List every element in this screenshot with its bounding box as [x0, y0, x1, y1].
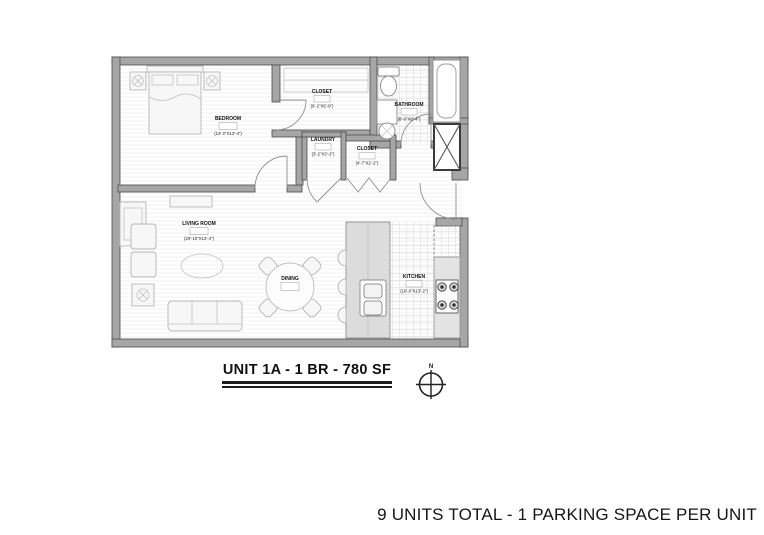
svg-text:LAUNDRY: LAUNDRY	[311, 137, 336, 143]
title-underline-top	[222, 381, 392, 384]
wall-laundry-right	[341, 132, 346, 180]
wall-divider-stub	[287, 185, 302, 192]
floor-plan-drawing: BEDROOM (13'-2"X13'-4") CLOSET (9'-2"X5'…	[0, 0, 764, 535]
wall-divider	[118, 185, 255, 192]
svg-text:KITCHEN: KITCHEN	[403, 274, 426, 280]
north-arrow-icon: N	[416, 364, 446, 399]
svg-text:BEDROOM: BEDROOM	[215, 116, 241, 122]
bed-headboard	[147, 66, 203, 72]
units-parking-note: 9 UNITS TOTAL - 1 PARKING SPACE PER UNIT	[377, 505, 757, 525]
room-label-dining: DINING	[281, 276, 299, 291]
svg-text:DINING: DINING	[281, 276, 299, 282]
title-underline-bottom	[222, 386, 392, 388]
wall-bottom	[112, 339, 468, 347]
svg-text:(10'-0"X13'-2"): (10'-0"X13'-2")	[400, 289, 428, 294]
sink-bowl	[364, 284, 382, 298]
svg-text:(9'-2"X5'-9"): (9'-2"X5'-9")	[311, 104, 334, 109]
svg-text:(3'-2"X3'-2"): (3'-2"X3'-2")	[312, 152, 335, 157]
wall-left	[112, 57, 120, 347]
console-table	[170, 196, 212, 207]
toilet-icon	[381, 76, 397, 96]
wall-laundry-left	[302, 132, 307, 180]
wall-kitchen-stub	[436, 218, 462, 226]
wall-bedroom-closet	[272, 65, 280, 102]
svg-text:(20'-10"X13'-4"): (20'-10"X13'-4")	[184, 236, 215, 241]
sofa-icon	[168, 301, 242, 331]
bed-icon	[149, 72, 201, 134]
svg-text:CLOSET: CLOSET	[312, 89, 332, 95]
wall-bathroom-west	[370, 57, 377, 148]
svg-text:(4'-7"X2'-2"): (4'-7"X2'-2")	[356, 161, 379, 166]
armchair	[131, 252, 156, 277]
wall-top	[112, 57, 468, 65]
wall-right-lower	[460, 218, 468, 347]
svg-text:LIVING ROOM: LIVING ROOM	[182, 221, 216, 227]
svg-text:N: N	[429, 364, 433, 370]
plan-title: UNIT 1A - 1 BR - 780 SF	[222, 362, 392, 378]
wall-right-upper	[460, 57, 468, 173]
toilet-tank	[378, 67, 399, 76]
plan-title-block: UNIT 1A - 1 BR - 780 SF	[222, 362, 392, 388]
svg-text:BATHROOM: BATHROOM	[394, 102, 423, 108]
svg-text:(13'-2"X13'-4"): (13'-2"X13'-4")	[214, 131, 242, 136]
sink-bowl	[364, 301, 382, 315]
armchair	[131, 224, 156, 249]
svg-text:CLOSET: CLOSET	[357, 146, 377, 152]
svg-text:(8'-0"X8'-4"): (8'-0"X8'-4")	[398, 117, 421, 122]
shaft	[434, 124, 460, 170]
wall-hallcloset-right	[390, 135, 396, 180]
